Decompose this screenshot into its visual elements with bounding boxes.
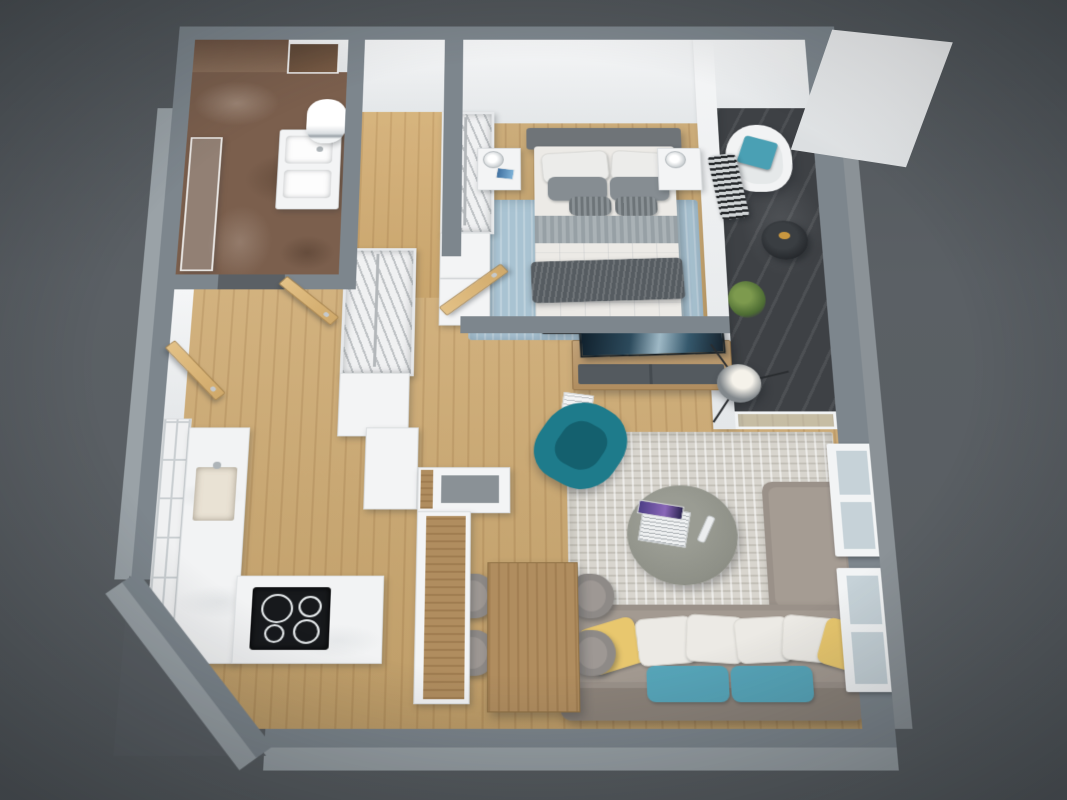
table-decor-gold — [778, 232, 790, 239]
bed-pillow-accent-left — [569, 197, 612, 216]
water-heater — [305, 99, 346, 143]
cooktop-burner-large — [260, 594, 293, 623]
kitchen-tall-cabinet — [363, 427, 419, 509]
wardrobe-rail-icon — [373, 254, 380, 367]
balcony-glass-door — [735, 411, 838, 429]
wall-corridor-bedroom — [442, 40, 464, 257]
wardrobe-rail-icon — [463, 117, 467, 225]
cooktop-burner-medium2 — [292, 619, 320, 644]
bathroom-shower-wall-face — [192, 40, 288, 72]
wall-south-outer-face — [263, 748, 899, 771]
induction-cooktop — [249, 587, 331, 650]
tv-sideboard-drawers — [578, 364, 725, 384]
bed-throw-blanket — [530, 257, 685, 303]
nightstand-tablet — [495, 167, 515, 180]
bed-pillow-accent-right — [615, 197, 658, 216]
window-pane — [851, 632, 888, 684]
bed-sheet-band — [535, 216, 679, 245]
dining-table — [487, 562, 581, 712]
cooktop-burner-medium — [298, 596, 322, 617]
door-handle-icon — [209, 386, 217, 393]
peninsula-gray-inset — [441, 475, 499, 503]
table-lamp-right-icon — [665, 151, 687, 168]
cooktop-burner-small — [264, 624, 285, 643]
door-handle-icon — [490, 272, 498, 278]
balcony-north-wall-face — [713, 40, 811, 108]
kitchen-sink — [192, 467, 237, 521]
window-pane — [840, 502, 875, 549]
drawer-divider — [649, 364, 653, 384]
peninsula-vertical-unit — [413, 511, 471, 704]
vanity-sink-bottom — [283, 170, 332, 198]
window-pane — [836, 451, 871, 495]
floor-plan — [81, 27, 919, 773]
bedroom-north-wall-face — [462, 40, 697, 124]
wall-bathroom-south-left — [157, 274, 219, 289]
window-pane — [846, 576, 882, 625]
sofa-cushion-teal-left — [646, 666, 730, 702]
teal-armchair-seat — [547, 415, 615, 477]
peninsula-wood-top — [423, 516, 466, 699]
table-lamp-left-icon — [483, 151, 504, 168]
chair-seat — [576, 580, 606, 611]
sofa-cushion-teal-right — [730, 666, 814, 702]
peninsula-top-unit — [417, 467, 510, 513]
chair-seat — [577, 637, 608, 669]
bathroom-mirror — [287, 43, 340, 74]
wall-bedroom-living-divider — [460, 316, 730, 333]
wall-north — [179, 27, 836, 40]
door-handle-icon — [322, 311, 330, 318]
wall-south — [264, 729, 896, 748]
apartment-render — [0, 0, 1067, 800]
peninsula-wood-edge — [420, 470, 433, 509]
